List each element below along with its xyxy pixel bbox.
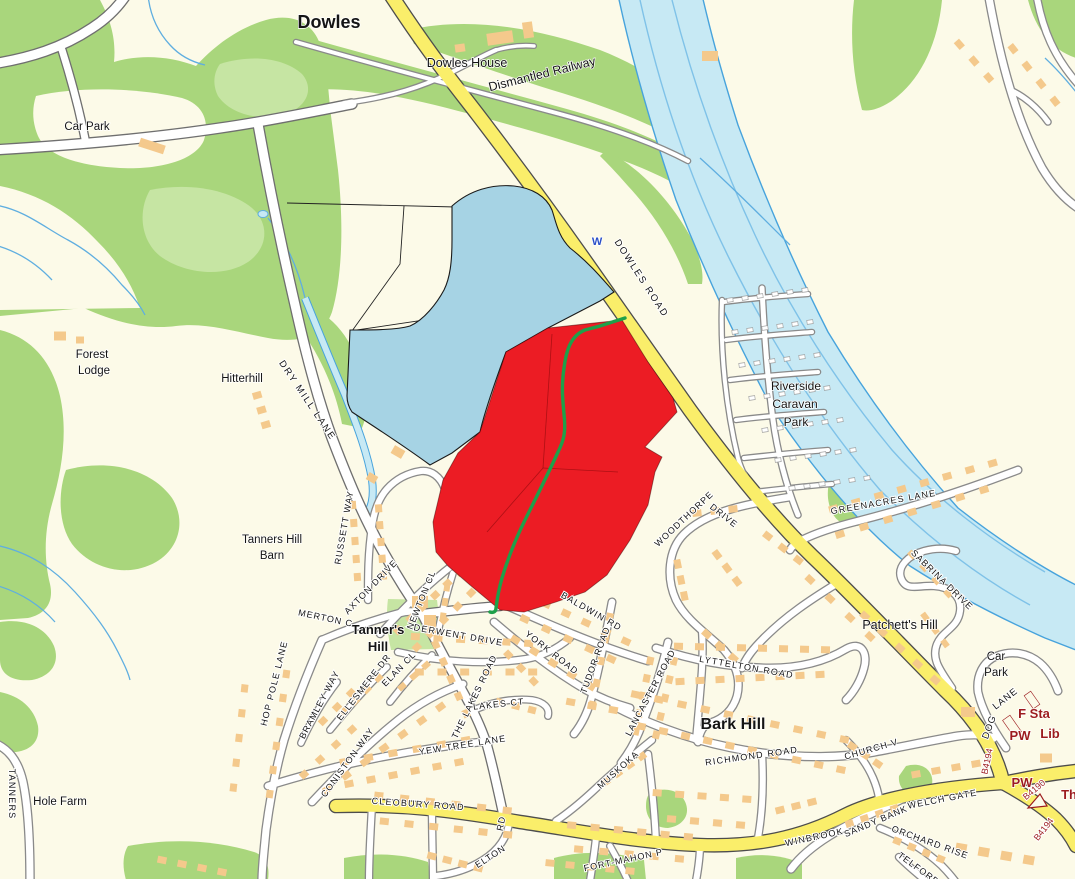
building: [690, 817, 700, 825]
label-barn: Barn: [260, 550, 284, 562]
building: [660, 831, 670, 839]
building: [684, 833, 694, 841]
label-tanner-s: Tanner's: [352, 622, 405, 637]
building: [800, 646, 809, 653]
building: [376, 521, 384, 529]
building: [54, 332, 66, 341]
building: [76, 337, 84, 344]
building: [443, 583, 450, 592]
building: [715, 676, 724, 683]
building: [352, 555, 360, 563]
caravan: [850, 448, 856, 453]
building: [266, 790, 274, 799]
caravan: [772, 292, 778, 297]
building: [695, 677, 704, 684]
caravan: [747, 328, 753, 333]
label-th: Th: [1061, 787, 1075, 802]
road: [432, 808, 433, 879]
building: [625, 867, 635, 875]
building: [454, 43, 465, 52]
caravan: [749, 396, 755, 401]
label-patchett-s-hill: Patchett's Hill: [862, 618, 937, 632]
label-tanners: TANNERS: [7, 769, 17, 820]
caravan: [807, 320, 813, 325]
caravan: [834, 480, 840, 485]
caravan: [742, 296, 748, 301]
caravan: [775, 458, 781, 463]
road: [369, 806, 372, 879]
label-pw: PW: [1010, 728, 1032, 743]
building: [675, 855, 685, 863]
label-f-sta: F Sta: [1018, 706, 1051, 721]
building: [276, 718, 284, 727]
building: [272, 742, 280, 751]
building: [377, 538, 385, 546]
caravan: [835, 450, 841, 455]
building: [378, 555, 386, 563]
building: [429, 823, 439, 831]
building: [528, 669, 537, 676]
building: [438, 669, 447, 676]
building: [574, 845, 584, 853]
building: [1040, 754, 1052, 763]
building: [238, 709, 246, 718]
building: [1000, 851, 1012, 862]
building: [675, 791, 684, 799]
caravan: [824, 386, 830, 391]
building: [821, 646, 830, 653]
building: [599, 848, 609, 856]
building: [674, 643, 683, 650]
caravan: [727, 298, 733, 303]
building: [441, 598, 448, 607]
label-riverside: Riverside: [771, 379, 821, 393]
building: [720, 794, 729, 802]
caravan: [777, 426, 783, 431]
building: [279, 694, 287, 703]
caravan: [822, 420, 828, 425]
building: [282, 670, 290, 679]
building: [478, 828, 488, 836]
building: [702, 51, 718, 61]
building: [779, 645, 788, 652]
building: [614, 826, 624, 834]
label-lib: Lib: [1040, 726, 1060, 741]
os-map[interactable]: DowlesDowles HouseDismantled RailwayCar …: [0, 0, 1075, 879]
building: [978, 847, 990, 858]
label-caravan: Caravan: [772, 397, 817, 411]
building: [737, 644, 746, 651]
building: [795, 672, 804, 679]
caravan: [769, 359, 775, 364]
building: [667, 815, 677, 823]
caravan: [849, 478, 855, 483]
map-canvas[interactable]: DowlesDowles HouseDismantled RailwayCar …: [0, 0, 1075, 879]
building: [735, 675, 744, 682]
building: [652, 789, 661, 797]
building: [742, 795, 751, 803]
caravan: [864, 476, 870, 481]
label-hitterhill: Hitterhill: [221, 373, 263, 385]
caravan: [804, 484, 810, 489]
caravan: [802, 288, 808, 293]
label-hill: Hill: [368, 639, 388, 654]
building: [235, 734, 243, 743]
caravan: [814, 353, 820, 358]
building: [502, 807, 512, 815]
caravan: [757, 294, 763, 299]
label-hole-farm: Hole Farm: [33, 796, 87, 808]
label-dowles-house: Dowles House: [427, 56, 508, 70]
building: [229, 783, 237, 792]
building: [460, 669, 469, 676]
label-park: Park: [784, 415, 810, 429]
caravan: [805, 454, 811, 459]
pond: [258, 211, 268, 218]
building: [697, 792, 706, 800]
caravan: [754, 361, 760, 366]
caravan: [789, 486, 795, 491]
caravan: [799, 355, 805, 360]
building: [354, 573, 362, 581]
building: [439, 612, 446, 621]
building: [695, 643, 704, 650]
label-dowles: Dowles: [297, 12, 360, 32]
building: [567, 821, 577, 829]
building: [477, 804, 487, 812]
building: [565, 861, 575, 869]
caravan: [819, 482, 825, 487]
building: [241, 684, 249, 693]
building: [351, 537, 359, 545]
building: [736, 821, 746, 829]
building: [506, 669, 515, 676]
building: [1023, 855, 1035, 866]
caravan: [762, 326, 768, 331]
building: [758, 645, 767, 652]
label-car: Car: [987, 651, 1006, 663]
building: [545, 859, 555, 867]
building: [453, 825, 463, 833]
building: [379, 817, 389, 825]
label-park: Park: [984, 667, 1008, 679]
building: [815, 671, 824, 678]
building: [350, 519, 358, 527]
building: [269, 766, 277, 775]
caravan: [762, 428, 768, 433]
caravan: [764, 394, 770, 399]
label-forest: Forest: [76, 349, 109, 361]
building: [590, 824, 600, 832]
caravan: [792, 322, 798, 327]
label-bark-hill: Bark Hill: [701, 716, 766, 733]
label-w: W: [592, 236, 603, 248]
building: [675, 678, 684, 685]
building: [232, 758, 240, 767]
label-tanners-hill: Tanners Hill: [242, 534, 302, 546]
building: [713, 819, 723, 827]
building: [411, 633, 420, 641]
caravan: [732, 330, 738, 335]
caravan: [790, 456, 796, 461]
caravan: [837, 418, 843, 423]
building: [375, 504, 383, 512]
label-lodge: Lodge: [78, 365, 110, 377]
caravan: [739, 363, 745, 368]
caravan: [820, 452, 826, 457]
caravan: [777, 324, 783, 329]
caravan: [784, 357, 790, 362]
building: [404, 820, 414, 828]
building: [728, 505, 738, 513]
building: [961, 707, 975, 717]
building: [637, 828, 647, 836]
caravan: [787, 290, 793, 295]
label-car-park: Car Park: [64, 121, 110, 133]
